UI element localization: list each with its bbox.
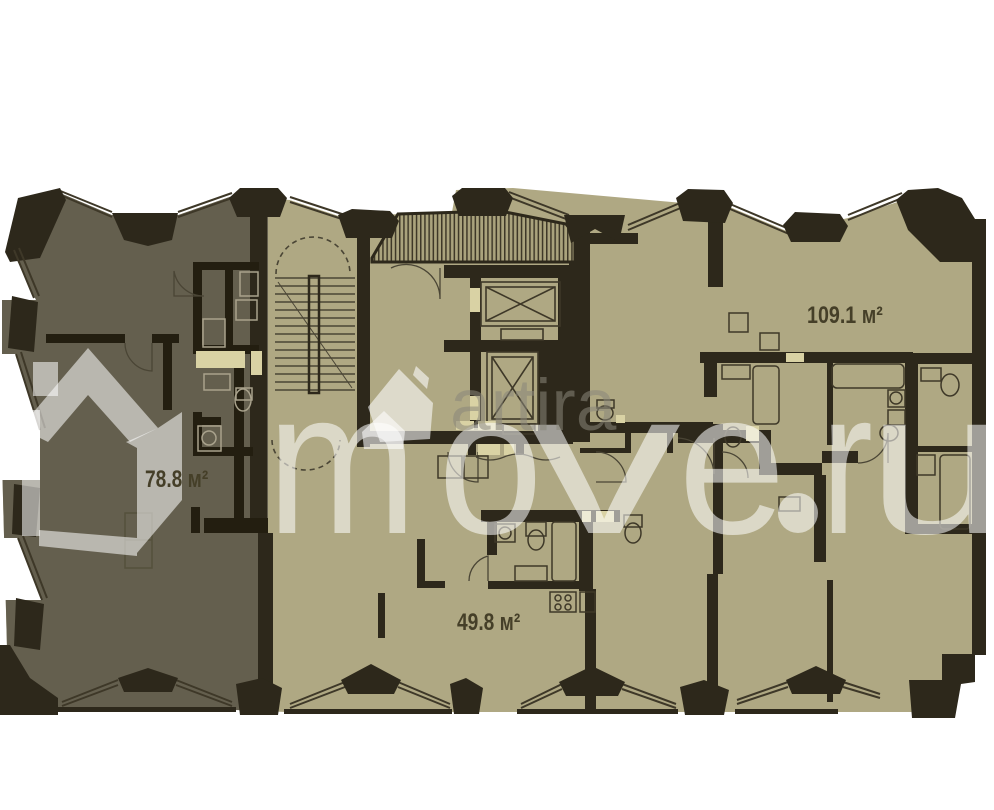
svg-text:u: u	[867, 348, 994, 577]
svg-text:78.8 м²: 78.8 м²	[145, 465, 208, 493]
svg-text:49.8 м²: 49.8 м²	[457, 608, 520, 636]
svg-text:109.1 м²: 109.1 м²	[807, 301, 883, 328]
svg-text:e: e	[678, 348, 786, 577]
svg-text:r: r	[821, 348, 873, 577]
svg-text:artira: artira	[450, 365, 617, 446]
